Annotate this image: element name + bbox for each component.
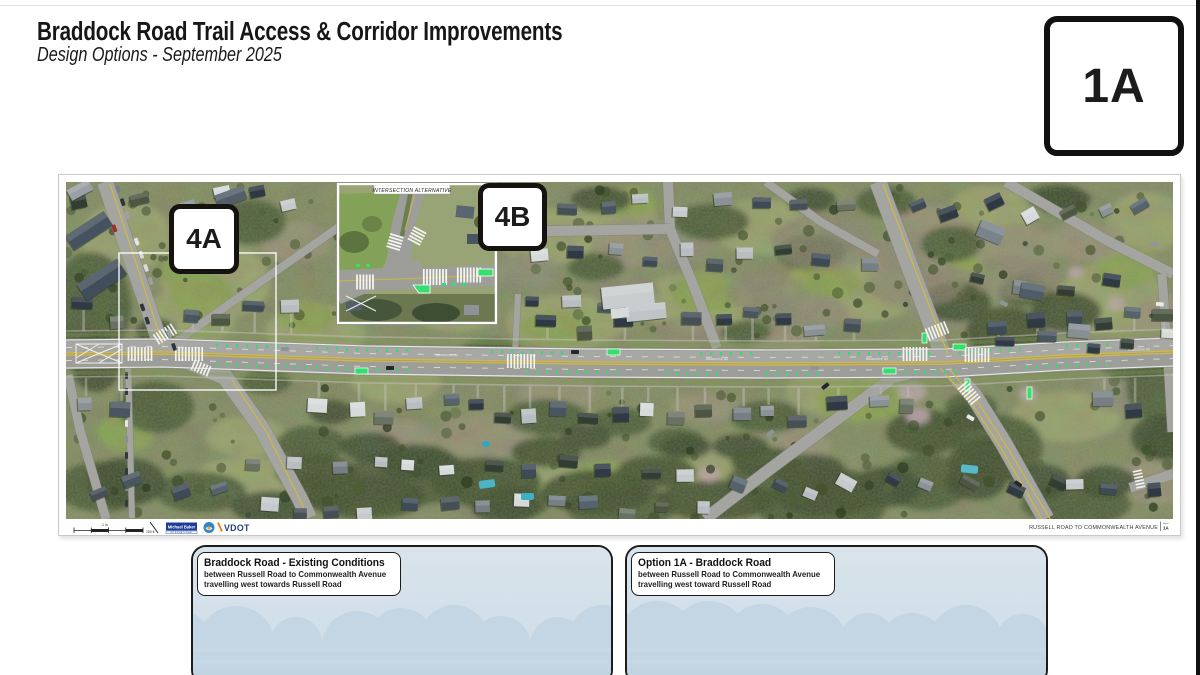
- svg-text:RUSSELL ROAD TO COMMONWEALTH A: RUSSELL ROAD TO COMMONWEALTH AVENUE: [1029, 525, 1158, 531]
- svg-text:100 ft: 100 ft: [146, 530, 155, 534]
- svg-text:1 in: 1 in: [102, 523, 108, 527]
- svg-text:BRADDOCK RD: BRADDOCK RD: [436, 353, 459, 357]
- svg-text:1A: 1A: [1163, 526, 1169, 531]
- svg-text:Michael Baker: Michael Baker: [168, 524, 196, 529]
- svg-text:VDOT: VDOT: [224, 523, 250, 533]
- svg-text:BRADDOCK RD: BRADDOCK RD: [706, 357, 729, 361]
- svg-text:INTERNATIONAL: INTERNATIONAL: [170, 531, 193, 534]
- svg-text:INTERSECTION ALTERNATIVE: INTERSECTION ALTERNATIVE: [372, 188, 451, 194]
- svg-text:BRADDOCK RD: BRADDOCK RD: [866, 357, 889, 361]
